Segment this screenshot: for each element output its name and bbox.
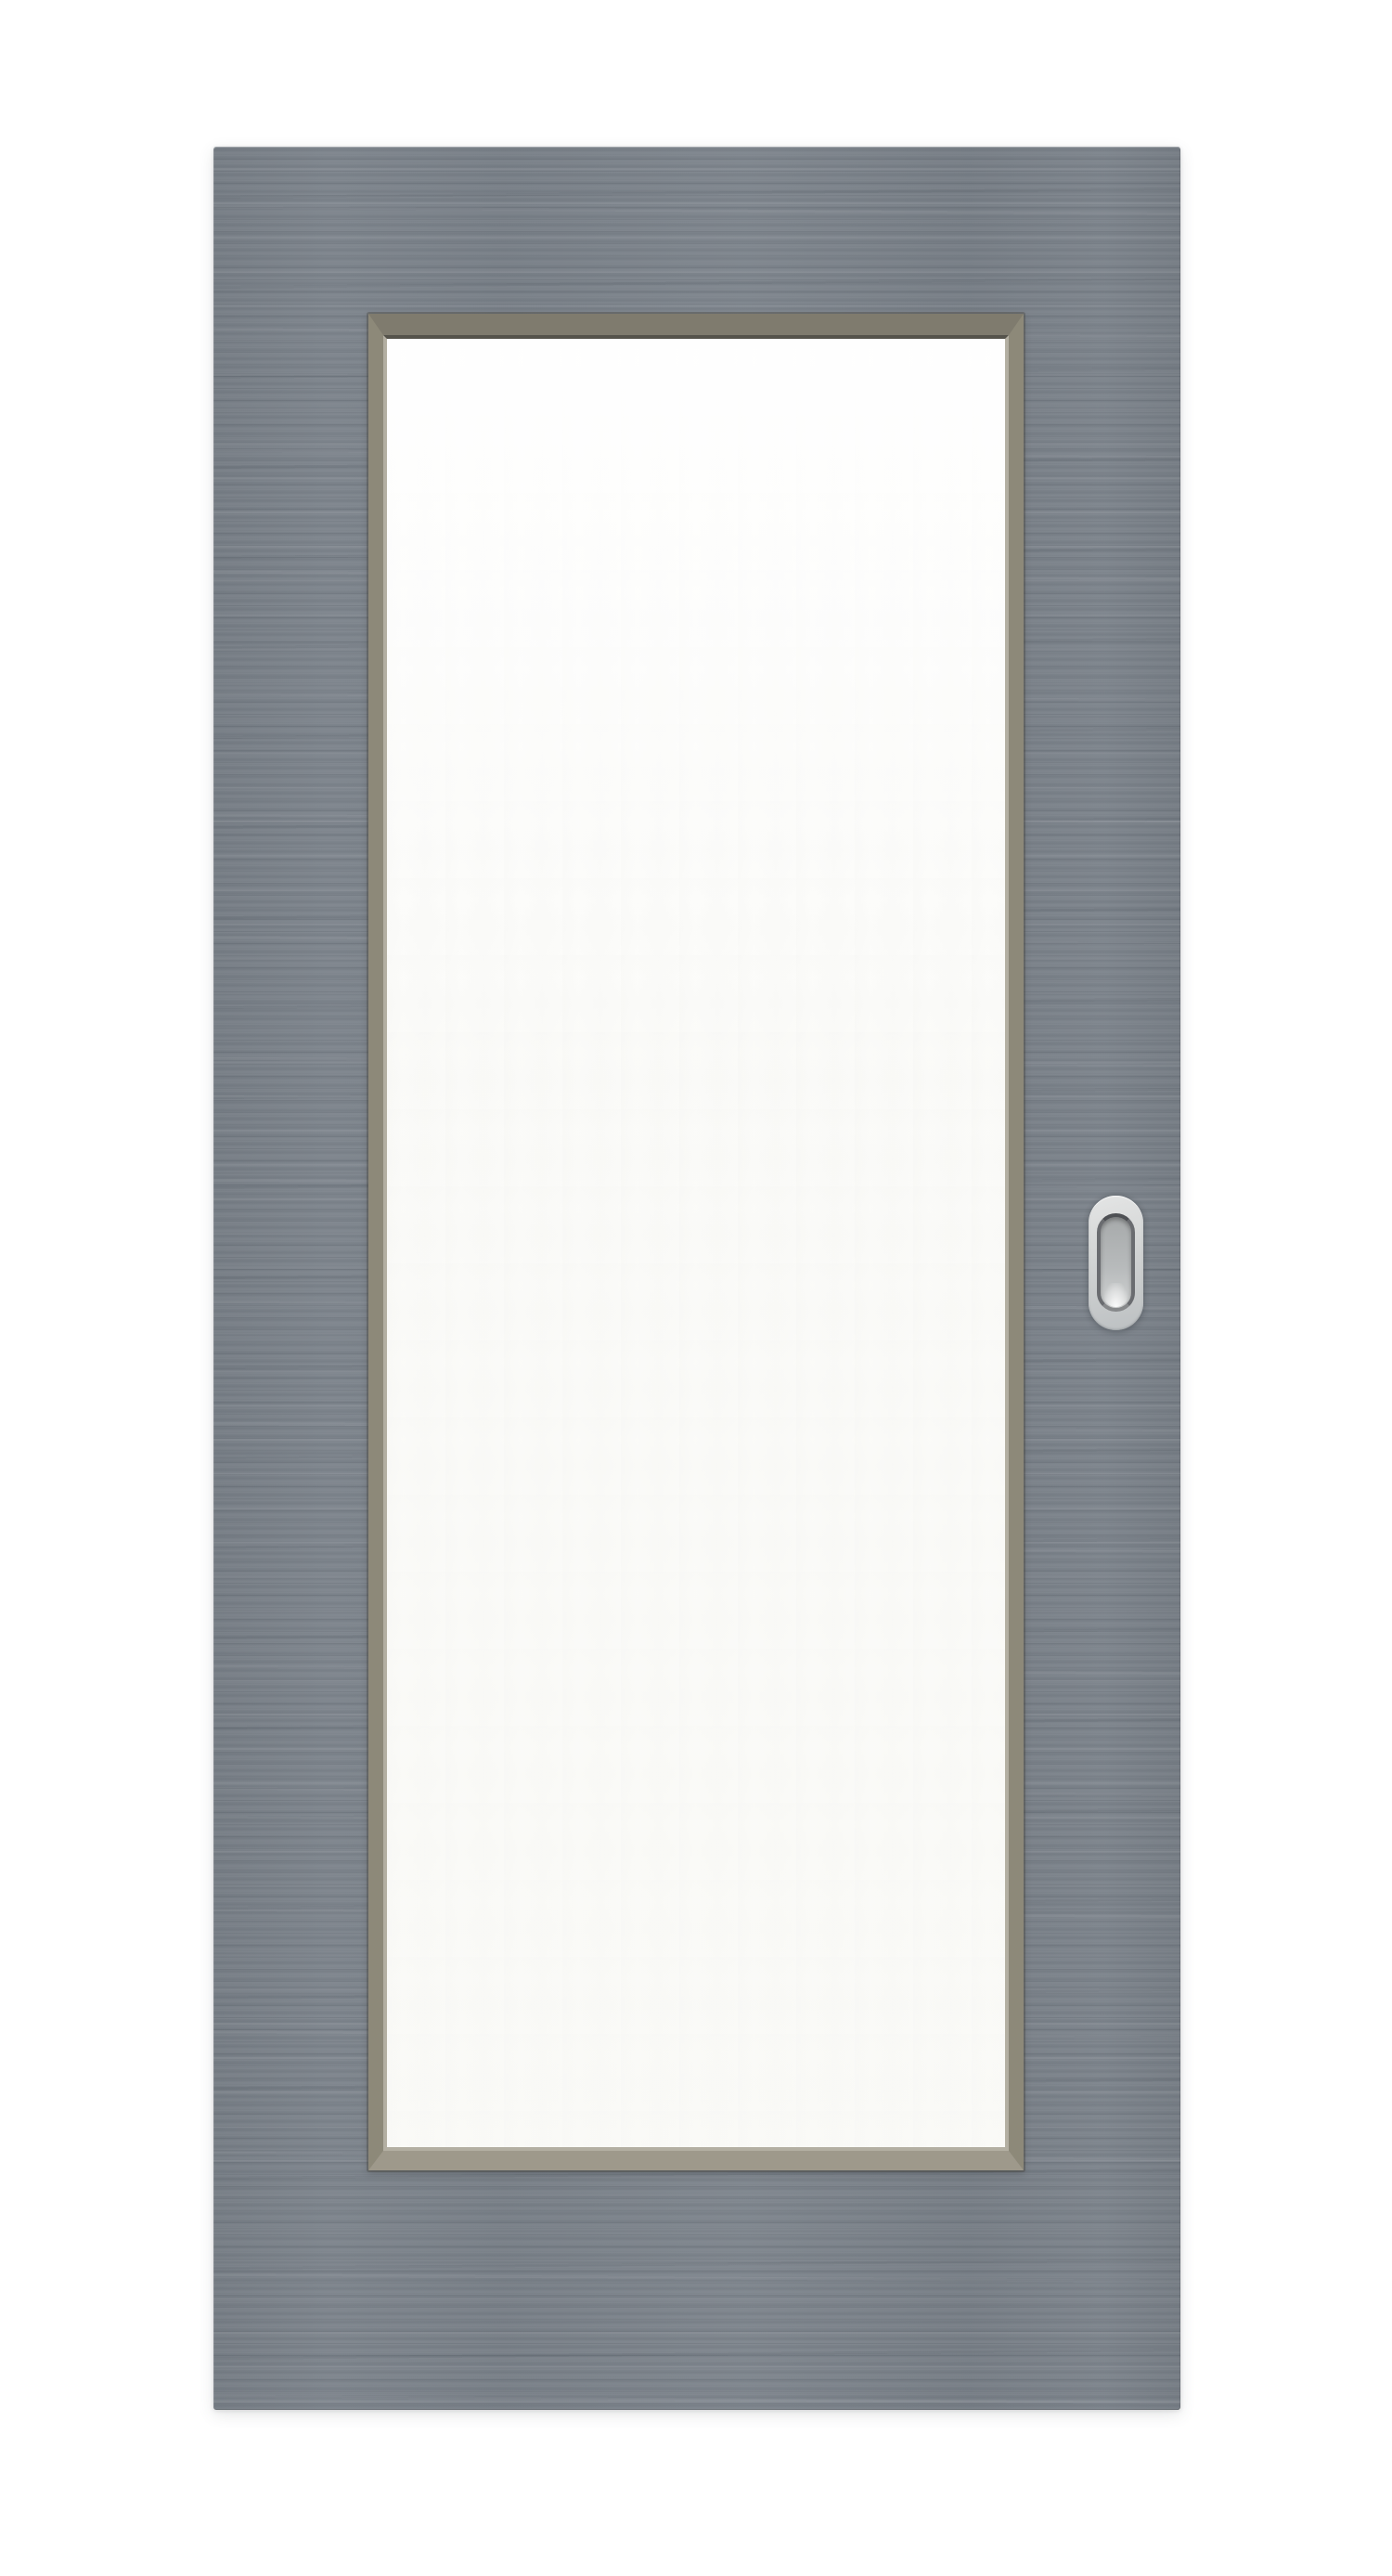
door-slab: [213, 147, 1180, 2410]
handle-recess: [1097, 1213, 1135, 1312]
product-photo: [0, 0, 1392, 2576]
handle-highlight-icon: [1103, 1283, 1128, 1307]
glass-bead: [383, 335, 1009, 2151]
glass-panel: [387, 339, 1005, 2147]
glass-frame: [368, 314, 1024, 2170]
flush-pull-handle: [1089, 1196, 1143, 1330]
